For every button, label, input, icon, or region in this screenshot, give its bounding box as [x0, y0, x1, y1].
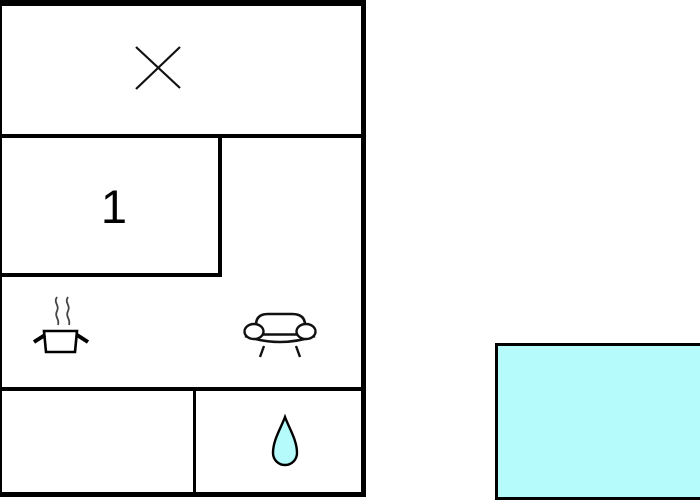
wall	[0, 134, 366, 138]
wall	[0, 273, 222, 277]
wall	[193, 387, 196, 497]
wall	[218, 134, 222, 277]
wall	[0, 387, 366, 391]
water-drop-fill	[273, 417, 297, 465]
sofa-icon	[238, 305, 322, 360]
room-number: 1	[94, 188, 134, 226]
swimming-pool	[495, 343, 700, 500]
cooking-pot-icon	[30, 293, 92, 355]
cross-icon	[132, 43, 184, 93]
floor-plan-canvas: 1	[0, 0, 700, 500]
water-drop-icon	[270, 414, 300, 468]
pool-water	[497, 345, 700, 499]
